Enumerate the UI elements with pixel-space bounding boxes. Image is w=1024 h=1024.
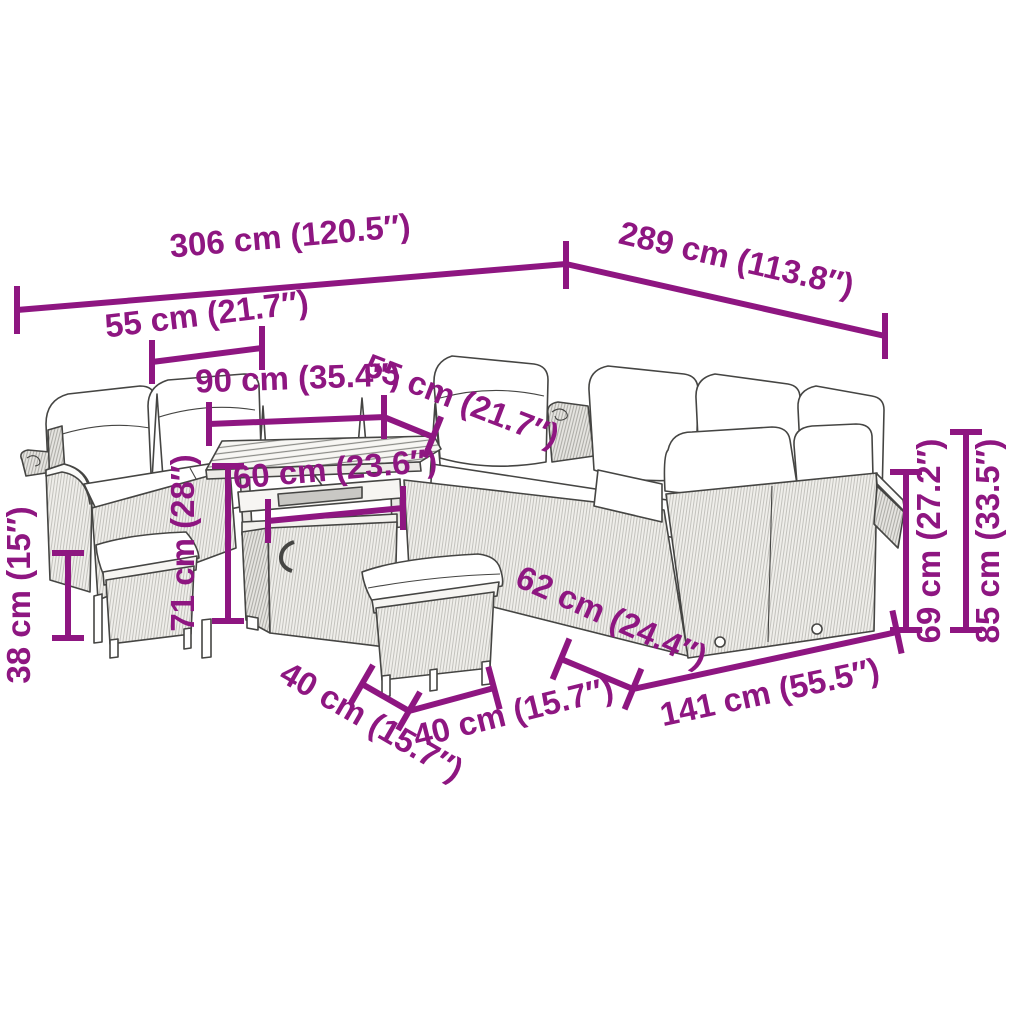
product-image: 306 cm (120.5″) 289 cm (113.8″) 55 cm (2…	[0, 0, 1024, 1024]
dimension-label: 40 cm (15.7″)	[409, 669, 617, 754]
dimension-label: 85 cm (33.5″)	[969, 439, 1006, 644]
stool-leg	[110, 639, 118, 658]
dimension-85cm: 85 cm (33.5″)	[950, 432, 1006, 643]
drainage-hole	[812, 624, 822, 634]
dimension-label: 71 cm (28″)	[164, 454, 201, 631]
stool-leg	[430, 669, 437, 691]
table-foot	[247, 616, 258, 630]
dimension-label: 306 cm (120.5″)	[168, 207, 412, 265]
drainage-hole	[715, 637, 725, 647]
dimension-40cm-front: 40 cm (15.7″)	[409, 667, 617, 755]
dimension-289cm: 289 cm (113.8″)	[566, 214, 885, 359]
stool-body	[376, 592, 494, 680]
dimension-label: 289 cm (113.8″)	[616, 214, 858, 304]
sofa-leg	[94, 594, 102, 643]
stool-leg	[202, 619, 211, 658]
dimension-label: 38 cm (15″)	[0, 506, 37, 683]
dimension-diagram: 306 cm (120.5″) 289 cm (113.8″) 55 cm (2…	[0, 0, 1024, 1024]
dimension-label: 69 cm (27.2″)	[910, 439, 947, 644]
